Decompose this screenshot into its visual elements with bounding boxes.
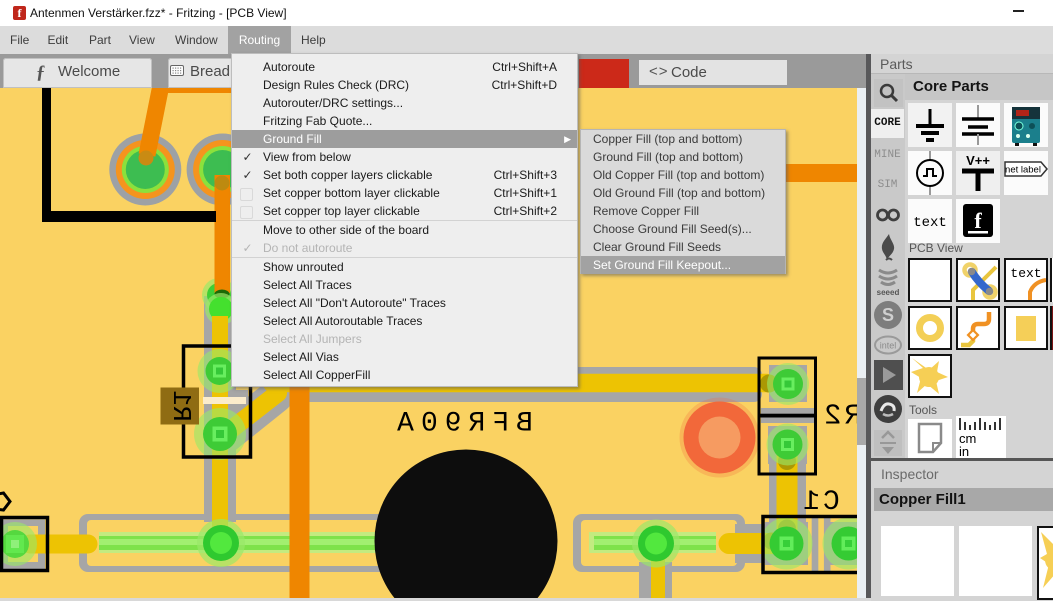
svg-text:intel: intel: [880, 341, 897, 351]
svg-text:text: text: [1010, 266, 1041, 281]
svg-text:f: f: [974, 208, 982, 233]
svg-text:in: in: [959, 444, 969, 458]
svg-text:C1: C1: [800, 487, 840, 518]
svg-text:BFR90A: BFR90A: [390, 409, 533, 440]
svg-text:R1: R1: [166, 390, 196, 421]
svg-text:text: text: [913, 215, 947, 231]
svg-text:net label: net label: [1005, 165, 1041, 176]
svg-text:R2: R2: [821, 400, 857, 433]
svg-text:V++: V++: [966, 153, 990, 168]
svg-text:seeed: seeed: [877, 288, 900, 297]
